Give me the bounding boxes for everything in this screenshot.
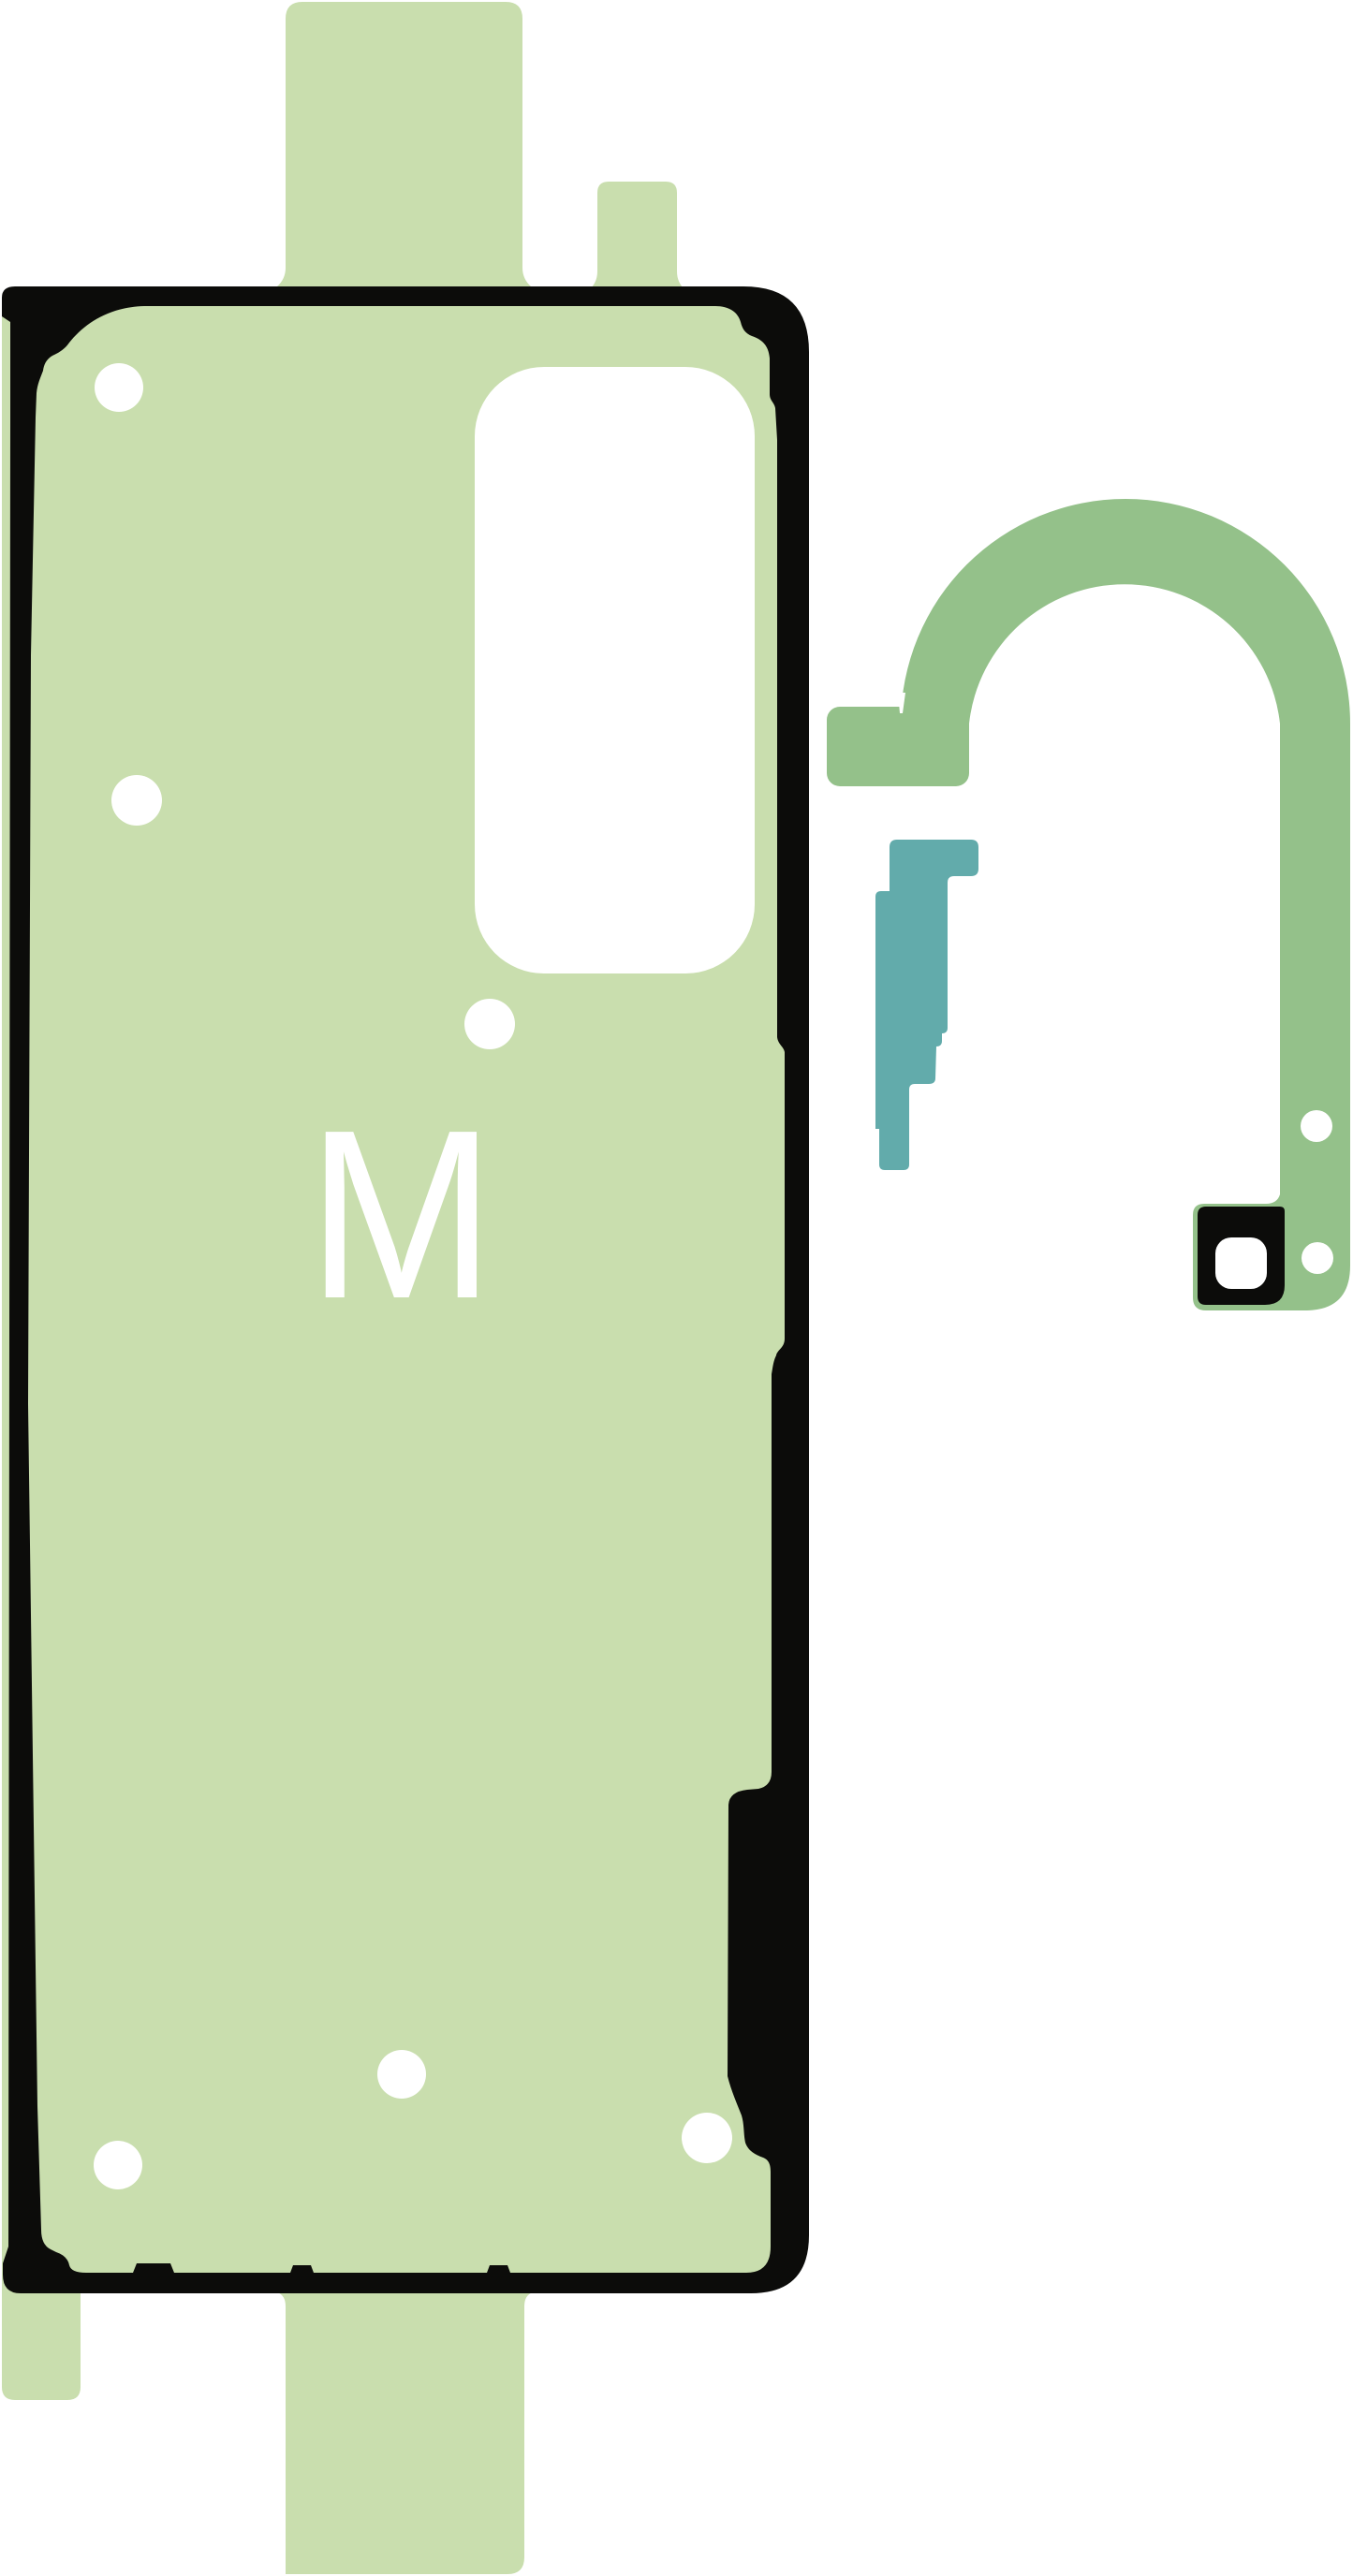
svg-text:M: M (307, 1079, 495, 1349)
